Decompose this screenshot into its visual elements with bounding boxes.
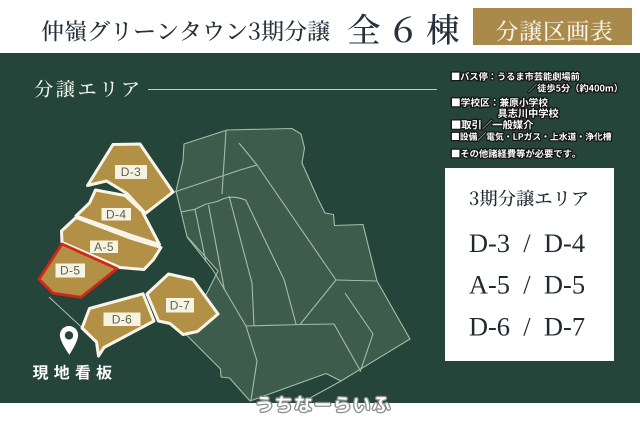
svg-text:D-6 / D-7: D-6 / D-7 [469,312,585,342]
svg-text:D-3: D-3 [121,165,142,179]
svg-text:D-3 / D-4: D-3 / D-4 [469,228,585,258]
svg-text:A-5 / D-5: A-5 / D-5 [469,270,585,300]
svg-text:D-5: D-5 [60,264,81,278]
svg-text:D-4: D-4 [106,207,127,221]
svg-text:D-6: D-6 [112,312,133,326]
svg-text:D-7: D-7 [170,298,191,312]
svg-text:A-5: A-5 [94,240,114,254]
